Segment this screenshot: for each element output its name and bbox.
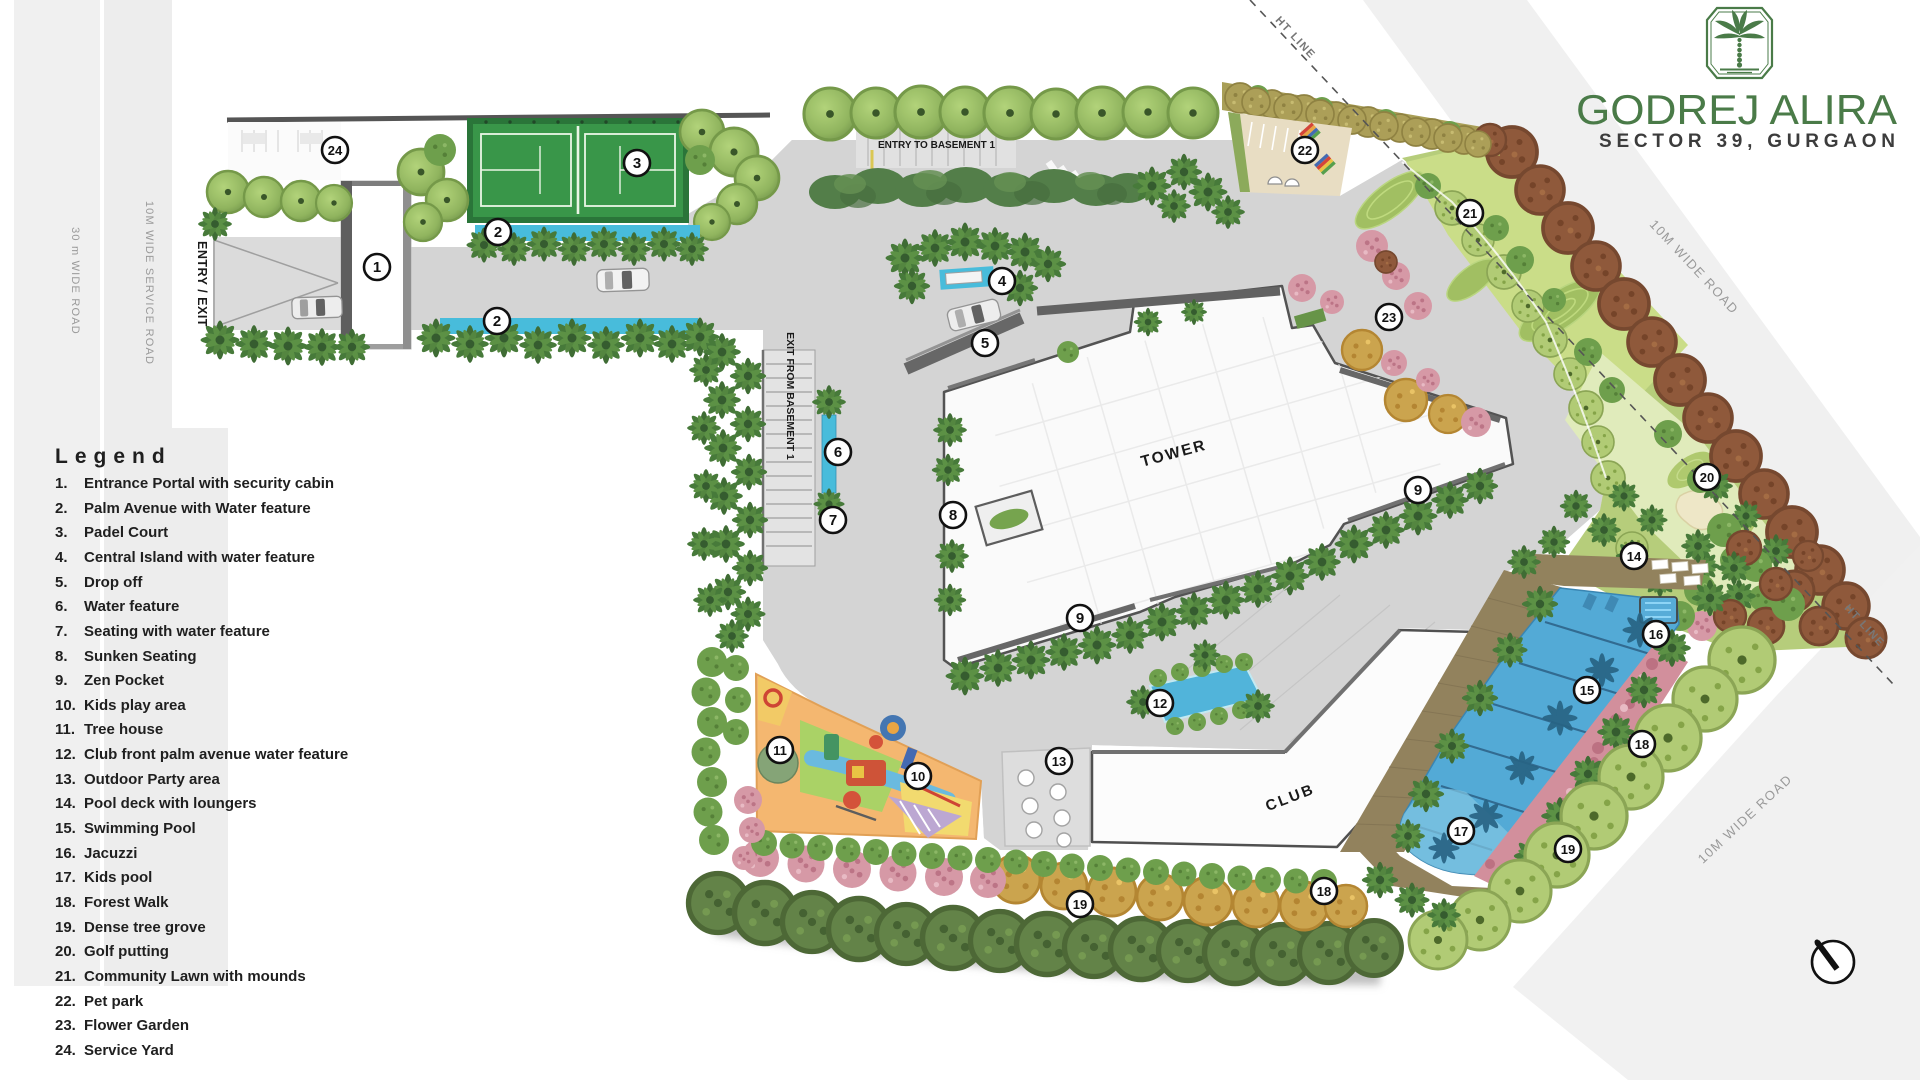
svg-text:Dense tree grove: Dense tree grove [84, 919, 206, 936]
svg-text:4: 4 [998, 273, 1007, 290]
svg-text:24.: 24. [55, 1042, 76, 1059]
svg-text:22.: 22. [55, 993, 76, 1010]
svg-text:SECTOR 39, GURGAON: SECTOR 39, GURGAON [1599, 131, 1895, 152]
svg-text:16.: 16. [55, 845, 76, 862]
svg-text:13.: 13. [55, 771, 76, 788]
svg-text:12: 12 [1153, 696, 1167, 711]
svg-text:4.: 4. [55, 549, 68, 566]
svg-text:Sunken Seating: Sunken Seating [84, 648, 197, 665]
svg-text:Seating with water feature: Seating with water feature [84, 623, 270, 640]
svg-text:Golf putting: Golf putting [84, 943, 169, 960]
svg-text:17: 17 [1454, 824, 1468, 839]
svg-text:21: 21 [1463, 206, 1477, 221]
svg-text:Flower Garden: Flower Garden [84, 1017, 189, 1034]
svg-text:Zen Pocket: Zen Pocket [84, 672, 164, 689]
svg-text:1.: 1. [55, 475, 68, 492]
svg-text:30 m WIDE ROAD: 30 m WIDE ROAD [69, 227, 81, 335]
svg-text:Outdoor Party area: Outdoor Party area [84, 771, 221, 788]
svg-text:Kids play area: Kids play area [84, 697, 186, 714]
svg-text:20.: 20. [55, 943, 76, 960]
svg-text:3: 3 [633, 155, 641, 172]
svg-text:6: 6 [834, 444, 842, 461]
svg-text:9.: 9. [55, 672, 68, 689]
svg-text:23: 23 [1382, 310, 1396, 325]
svg-text:14.: 14. [55, 795, 76, 812]
svg-text:9: 9 [1414, 482, 1422, 499]
svg-text:10: 10 [911, 769, 925, 784]
svg-text:7.: 7. [55, 623, 68, 640]
svg-text:12.: 12. [55, 746, 76, 763]
svg-text:10.: 10. [55, 697, 76, 714]
svg-text:Kids pool: Kids pool [84, 869, 152, 886]
svg-text:1: 1 [373, 259, 381, 276]
svg-text:15: 15 [1580, 683, 1594, 698]
svg-text:11.: 11. [55, 721, 75, 738]
svg-text:2: 2 [494, 224, 502, 241]
svg-text:GODREJ ALIRA: GODREJ ALIRA [1576, 86, 1897, 133]
svg-text:Pet park: Pet park [84, 993, 144, 1010]
svg-text:5: 5 [981, 335, 989, 352]
svg-text:24: 24 [328, 143, 343, 158]
svg-text:ENTRY TO BASEMENT 1: ENTRY TO BASEMENT 1 [878, 140, 995, 151]
svg-text:18: 18 [1317, 884, 1331, 899]
svg-text:2.: 2. [55, 500, 68, 517]
svg-text:Water feature: Water feature [84, 598, 179, 615]
svg-text:Entrance Portal with security: Entrance Portal with security cabin [84, 475, 334, 492]
svg-text:19: 19 [1073, 897, 1087, 912]
svg-text:8: 8 [949, 507, 957, 524]
svg-text:6.: 6. [55, 598, 68, 615]
svg-text:Tree house: Tree house [84, 721, 163, 738]
svg-text:Swimming Pool: Swimming Pool [84, 820, 196, 837]
svg-text:7: 7 [829, 512, 837, 529]
svg-text:3.: 3. [55, 524, 68, 541]
svg-text:23.: 23. [55, 1017, 76, 1034]
svg-text:Central Island with water feat: Central Island with water feature [84, 549, 315, 566]
svg-text:21.: 21. [55, 968, 76, 985]
svg-text:19: 19 [1561, 842, 1575, 857]
svg-text:Palm Avenue with Water feature: Palm Avenue with Water feature [84, 500, 311, 517]
svg-text:5.: 5. [55, 574, 68, 591]
svg-text:Service Yard: Service Yard [84, 1042, 174, 1059]
svg-text:17.: 17. [55, 869, 76, 886]
svg-text:Padel Court: Padel Court [84, 524, 168, 541]
svg-text:8.: 8. [55, 648, 68, 665]
svg-text:Forest Walk: Forest Walk [84, 894, 169, 911]
svg-text:14: 14 [1627, 549, 1642, 564]
svg-text:Drop off: Drop off [84, 574, 143, 591]
svg-text:Community Lawn with mounds: Community Lawn with mounds [84, 968, 306, 985]
svg-text:Legend: Legend [55, 445, 172, 468]
svg-text:18: 18 [1635, 737, 1649, 752]
svg-text:Jacuzzi: Jacuzzi [84, 845, 137, 862]
svg-text:19.: 19. [55, 919, 76, 936]
svg-text:11: 11 [773, 743, 787, 758]
svg-text:22: 22 [1298, 143, 1312, 158]
svg-text:2: 2 [493, 313, 501, 330]
svg-text:Pool deck with loungers: Pool deck with loungers [84, 795, 257, 812]
svg-text:18.: 18. [55, 894, 76, 911]
svg-text:10M WIDE SERVICE ROAD: 10M WIDE SERVICE ROAD [143, 201, 155, 365]
svg-text:16: 16 [1649, 627, 1663, 642]
svg-text:EXIT FROM BASEMENT 1: EXIT FROM BASEMENT 1 [784, 332, 796, 460]
svg-text:13: 13 [1052, 754, 1066, 769]
svg-text:Club front palm avenue water f: Club front palm avenue water feature [84, 746, 348, 763]
svg-text:20: 20 [1700, 470, 1714, 485]
svg-text:ENTRY / EXIT: ENTRY / EXIT [195, 241, 209, 327]
svg-text:15.: 15. [55, 820, 76, 837]
svg-text:9: 9 [1076, 610, 1084, 627]
